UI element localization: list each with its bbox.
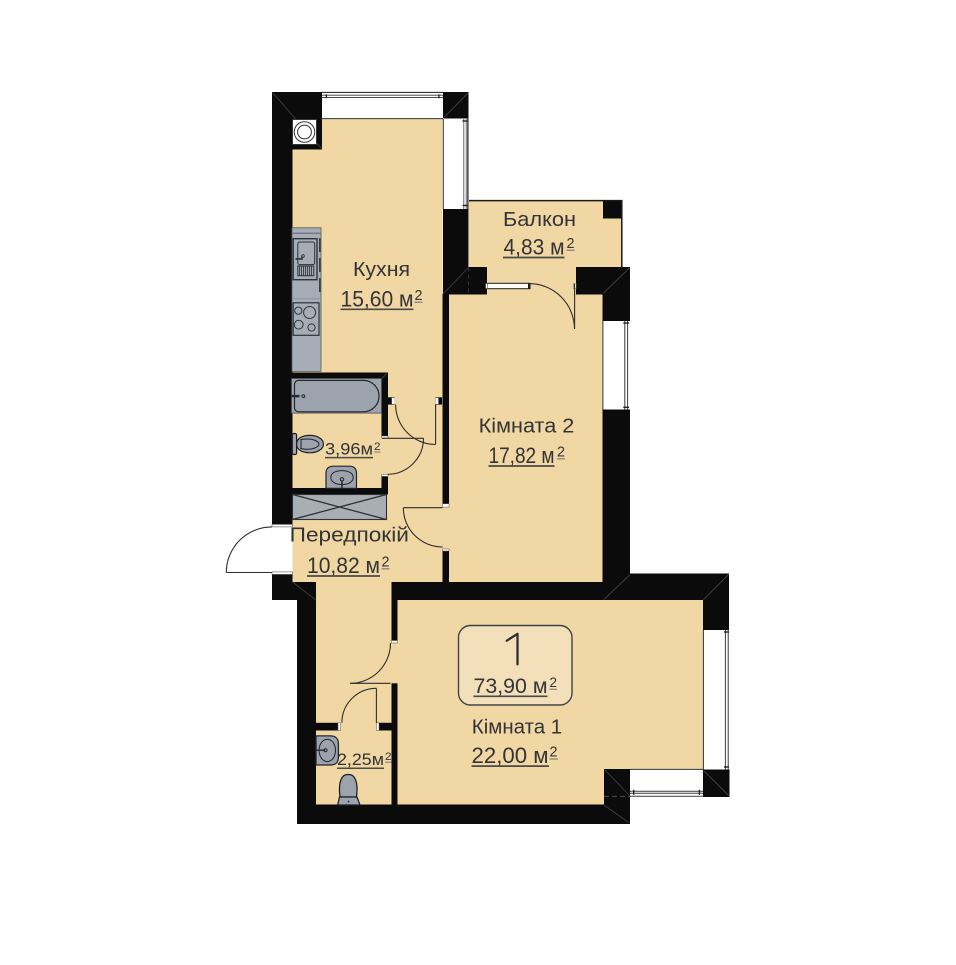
svg-text:Кухня: Кухня: [353, 259, 410, 281]
svg-text:Кімната 2: Кімната 2: [479, 415, 575, 437]
svg-text:2: 2: [550, 674, 558, 690]
svg-text:Кімната 1: Кімната 1: [472, 716, 562, 738]
svg-text:2: 2: [557, 444, 565, 460]
svg-text:10,82 м: 10,82 м: [307, 553, 380, 578]
svg-text:2,25м: 2,25м: [337, 751, 384, 769]
svg-text:2: 2: [385, 751, 392, 763]
svg-text:2: 2: [550, 745, 558, 761]
svg-text:Балкон: Балкон: [503, 209, 576, 231]
svg-text:2: 2: [374, 441, 381, 453]
svg-text:15,60 м: 15,60 м: [341, 286, 414, 311]
svg-text:22,00 м: 22,00 м: [472, 743, 549, 768]
svg-text:73,90 м: 73,90 м: [474, 675, 548, 698]
svg-text:2: 2: [567, 236, 575, 252]
svg-text:17,82 м: 17,82 м: [489, 443, 555, 468]
svg-text:Передпокій: Передпокій: [290, 524, 409, 546]
svg-text:2: 2: [382, 554, 390, 570]
svg-text:2: 2: [415, 288, 423, 304]
svg-text:3,96м: 3,96м: [325, 440, 373, 459]
svg-text:4,83 м: 4,83 м: [504, 234, 565, 259]
